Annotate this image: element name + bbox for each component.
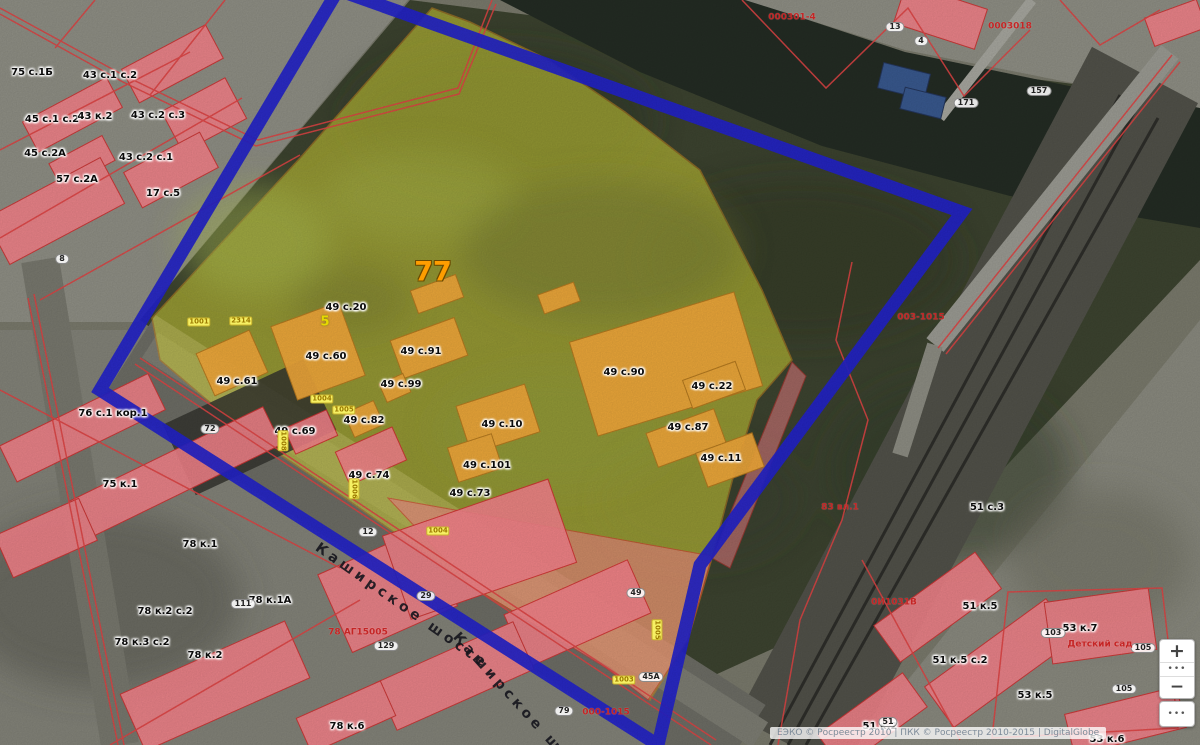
attribution-bar: ЕЭКО © Росреестр 2010 | ПКК © Росреестр …	[770, 727, 1106, 739]
map-tools-control: •••	[1159, 701, 1195, 727]
cadastral-quarter-label: 000301-4	[768, 14, 816, 23]
parcel-tag-label: 1006	[349, 478, 360, 499]
building-label: 43 с.1 с.2	[83, 71, 137, 81]
road-marker-label: 49	[626, 588, 645, 598]
building-label: 53 к.5	[1018, 691, 1053, 701]
building-label: 75 к.1	[103, 480, 138, 490]
zoom-slider[interactable]: •••	[1160, 662, 1194, 677]
building-label: 57 с.2А	[56, 175, 98, 185]
building-label: 49 с.60	[305, 352, 346, 362]
road-marker-label: 157	[1027, 86, 1052, 96]
road-marker-label: 79	[554, 706, 573, 716]
zoom-in-button[interactable]: +	[1160, 640, 1194, 662]
building-label: 49 с.101	[463, 461, 511, 471]
cadastral-quarter-label: 83 вл.1	[821, 504, 859, 513]
building-label: 45 с.1 с.2	[25, 115, 79, 125]
parcel-tag-label: 1008	[278, 430, 289, 451]
building-label: 49 с.20	[325, 303, 366, 313]
cadastral-quarter-label: 003-1015	[897, 314, 945, 323]
building-label: 49 с.82	[343, 416, 384, 426]
building-label: 51 с.3	[970, 503, 1004, 513]
road-marker-label: 29	[416, 591, 435, 601]
road-marker-label: 105	[1112, 684, 1137, 694]
building-label: 49 с.11	[700, 454, 741, 464]
building-label: 49 с.90	[603, 368, 644, 378]
building-label: 78 к.2	[188, 651, 223, 661]
building-label: 53 к.7	[1063, 624, 1098, 634]
road-marker-label: 45А	[638, 672, 663, 682]
cadastral-map-viewport[interactable]: 75 с.1Б43 с.1 с.245 с.1 с.243 к.243 с.2 …	[0, 0, 1200, 745]
building-label: 43 с.2 с.1	[119, 153, 173, 163]
parcel-tag-label: 2314	[229, 317, 252, 326]
parcel-tag-label: 1005	[652, 619, 663, 640]
parcel-tag-label: 1003	[612, 676, 635, 685]
more-tools-button[interactable]: •••	[1160, 703, 1194, 725]
road-marker-label: 105	[1131, 643, 1156, 653]
building-label: 76 с.1 кор.1	[78, 409, 147, 419]
road-marker-label: 171	[954, 98, 979, 108]
road-marker-label: 4	[914, 36, 928, 46]
road-marker-label: 8	[55, 254, 69, 264]
building-label: 49 с.10	[481, 420, 522, 430]
road-marker-label: 72	[200, 424, 219, 434]
road-marker-label: 51	[878, 717, 897, 727]
building-label: 75 с.1Б	[11, 68, 53, 78]
road-marker-label: 111	[231, 599, 256, 609]
building-label: 49 с.91	[400, 347, 441, 357]
building-label: 43 к.2	[78, 112, 113, 122]
building-label: 78 к.6	[330, 722, 365, 732]
building-label: 51 к.5	[963, 602, 998, 612]
building-label: 45 с.2А	[24, 149, 66, 159]
cadastral-quarter-label: 0003018	[988, 23, 1032, 32]
road-marker-label: 12	[358, 527, 377, 537]
zoom-out-button[interactable]: −	[1160, 677, 1194, 698]
building-label: 49 с.22	[691, 382, 732, 392]
building-label: 49 с.87	[667, 423, 708, 433]
parcel-tag-label: 5	[320, 316, 329, 329]
parcel-tag-label: 1001	[187, 318, 210, 327]
cadastral-quarter-label: 78 АГ15005	[328, 629, 388, 638]
building-label: 51 к.5 с.2	[932, 656, 987, 666]
cadastral-quarter-label: 000-1015	[582, 709, 630, 718]
map-label-layer: 75 с.1Б43 с.1 с.245 с.1 с.243 к.243 с.2 …	[0, 0, 1200, 745]
road-marker-label: 103	[1041, 628, 1066, 638]
road-marker-label: 13	[885, 22, 904, 32]
zoom-control: + ••• −	[1159, 639, 1195, 699]
parcel-tag-label: 1005	[332, 406, 355, 415]
building-label: 78 к.3 с.2	[114, 638, 169, 648]
parcel-tag-label: 1004	[310, 395, 333, 404]
selected-parcel-number: 77	[414, 259, 452, 286]
building-label: 17 с.5	[146, 189, 180, 199]
building-label: 43 с.2 с.3	[131, 111, 185, 121]
building-label: 78 к.2 с.2	[137, 607, 192, 617]
cadastral-quarter-label: 0И1031В	[871, 599, 917, 608]
building-label: 49 с.99	[380, 380, 421, 390]
building-label: 49 с.73	[449, 489, 490, 499]
street-name-label: Каширское шоссе	[450, 630, 600, 745]
road-marker-label: 129	[374, 641, 399, 651]
cadastral-quarter-label: Детский сад	[1067, 641, 1132, 650]
parcel-tag-label: 1004	[426, 527, 449, 536]
building-label: 78 к.1	[183, 540, 218, 550]
building-label: 49 с.61	[216, 377, 257, 387]
